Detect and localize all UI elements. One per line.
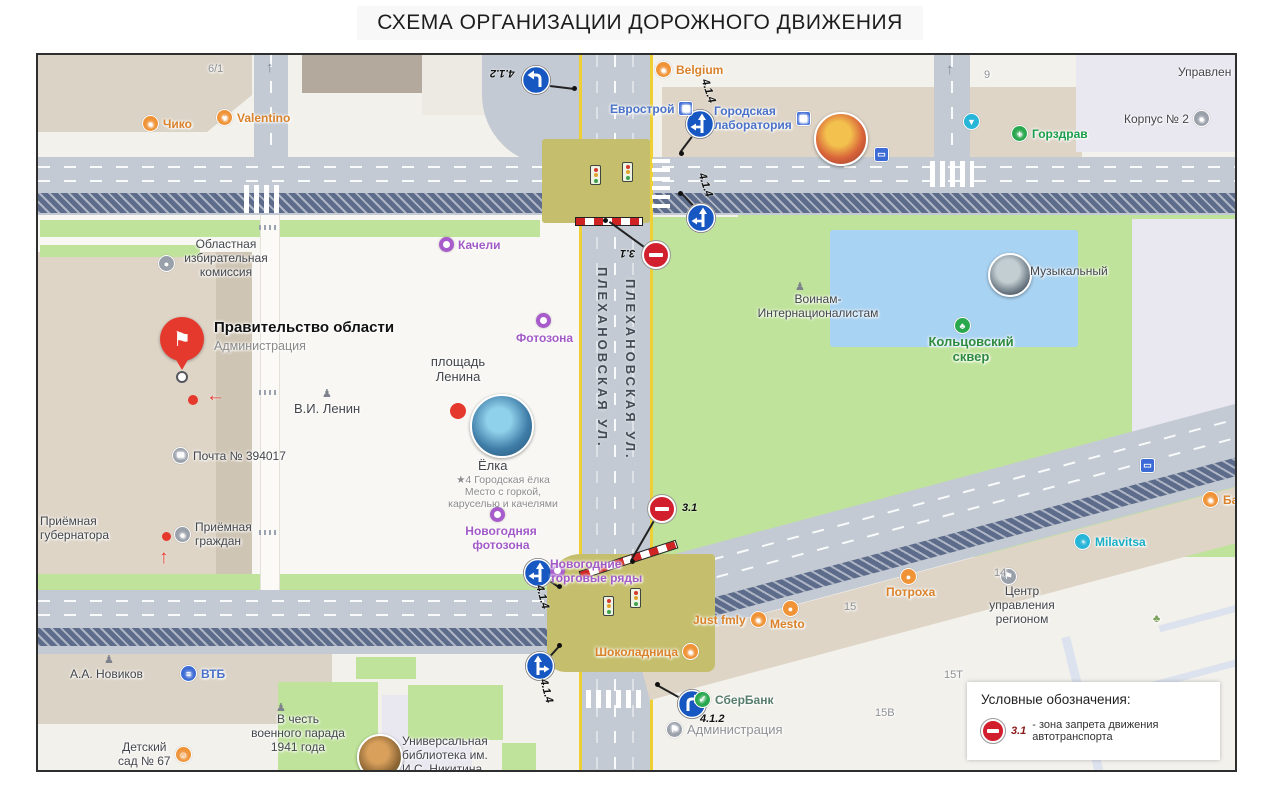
event-donut-icon [490,507,505,522]
pub-icon: ● [655,61,672,78]
poi-voinam[interactable]: Воинам- Интернационалистам [738,293,898,321]
poi-novog-torg[interactable]: Новогодние торговые ряды [550,558,642,586]
poi-label: Новогодние торговые ряды [550,558,642,586]
building-number: 15В [875,707,895,719]
pin-tail [175,358,189,370]
poi-just-fmly[interactable]: Just fmly● [693,611,767,628]
poi-lenin[interactable]: В.И. Ленин [294,401,360,416]
building-right-of-park [1132,217,1237,433]
poi-korpus2[interactable]: Корпус № 2● [1124,110,1210,127]
poi-label: Фотозона [516,331,573,345]
library-photo[interactable] [357,734,403,772]
poi-label: Valentino [237,111,290,125]
poi-belgium[interactable]: ●Belgium [655,61,723,78]
pin-anchor-ring [176,371,188,383]
plant-icon: ♣ [1153,613,1160,625]
monument-icon: ♟ [104,653,114,666]
poi-novikov[interactable]: А.А. Новиков [70,667,143,681]
poi-label: Потроха [886,585,935,599]
sign-4-1-4-straight-or-right [525,651,555,681]
leader-dot [572,86,577,91]
crosswalk-east-approach [652,159,670,211]
lab-icon: ▤ [796,111,811,126]
poi-valentino[interactable]: ♥Valentino [216,109,290,126]
leader-dot [678,191,683,196]
legend-sign-number: 3.1 [1011,725,1026,737]
poi-label: Музыкальный [1030,264,1108,278]
poi-label: Приёмная губернатора [40,515,109,543]
transit-stop-icon[interactable]: ▭ [874,147,889,162]
building-dark-roof [302,55,422,93]
poi-parad: В честь военного парада 1941 года [228,713,368,754]
legend-box: Условные обозначения: 3.1 - зона запрета… [967,682,1220,760]
poi-fotozona[interactable]: Фотозона [516,331,573,345]
sberbank-icon: ✓ [694,691,711,708]
lane-arrow-icon: ↑ [266,59,274,76]
poi-label: Ёлка [478,458,507,473]
no-entry-sign-icon [981,719,1005,743]
green-patch-3 [502,743,536,772]
route-dot [162,532,171,541]
elka-photo[interactable] [470,394,534,458]
cafe-icon: ● [682,643,699,660]
poi-label: Правительство области [214,319,394,336]
sign-4-1-2-turn-left [521,65,551,95]
traffic-light-icon [622,162,633,182]
traffic-light-icon [603,596,614,616]
elka-dot [450,403,466,419]
poi-milavitsa[interactable]: ◔Milavitsa [1074,533,1146,550]
building-number: 9 [984,69,990,81]
poi-label: А.А. Новиков [70,667,143,681]
monument-icon: ♟ [322,387,332,400]
street-label-plekhanovskaya-2: ПЛЕХАНОВСКАЯ УЛ. [623,279,638,461]
poi-chiko[interactable]: ●Чико [142,115,192,132]
event-donut-icon [439,237,454,252]
poi-label: Воинам- Интернационалистам [738,293,898,321]
page-title-text: СХЕМА ОРГАНИЗАЦИИ ДОРОЖНОГО ДВИЖЕНИЯ [357,6,923,40]
map-canvas[interactable]: ПЛЕХАНОВСКАЯ УЛ. ПЛЕХАНОВСКАЯ УЛ. ↑ ↑ [36,53,1237,772]
leader-dot [557,643,562,648]
poi-label: Детский сад № 67 [118,741,171,769]
poi-label: В честь военного парада 1941 года [228,713,368,754]
crosswalk-ticks-2 [259,390,279,395]
poi-admin2[interactable]: ⚑Администрация [666,721,783,738]
poi-label: Еврострой [610,102,674,116]
poi-label: Новогодняя фотозона [446,525,556,553]
poi-novog-fotozona[interactable]: Новогодняя фотозона [446,525,556,553]
poi-sublabel: Администрация [214,339,306,353]
poi-label: Belgium [676,63,723,77]
leader-dot [655,682,660,687]
poi-label: ВТБ [201,667,225,681]
pharmacy-cross-icon: + [1011,125,1028,142]
poi-label: Горздрав [1032,127,1088,141]
clothing-store-icon[interactable]: ▼ [963,113,980,130]
mail-icon: ✉ [172,447,189,464]
poi-label: Кольцовский сквер [906,335,1036,365]
poi-label: Шоколадница [595,645,678,659]
restaurant-icon: ● [900,568,917,585]
legend-item-text: - зона запрета движения автотранспорта [1032,719,1220,743]
poi-shokoladnitsa[interactable]: Шоколадница● [595,643,699,660]
poi-bara[interactable]: ●Бара [1202,491,1237,508]
poi-label: Областная избирательная комиссия [166,238,286,279]
poi-label: Чико [163,117,192,131]
poi-oblkom[interactable]: Областная избирательная комиссия [166,238,286,279]
building-government-wing [216,252,252,602]
building-number: 15Т [944,669,963,681]
sign-label: 4.1.4 [537,678,555,705]
smile-icon: ☺ [175,746,192,763]
poi-pl-lenina: площадь Ленина [413,355,503,385]
poi-detsad[interactable]: Детский сад № 67☺ [118,741,192,769]
poi-label: Качели [458,238,501,252]
poi-label: В.И. Ленин [294,401,360,416]
poi-label: Mesto [770,617,805,631]
flag-icon: ⚑ [173,327,191,352]
traffic-light-icon [630,588,641,608]
street-label-plekhanovskaya-1: ПЛЕХАНОВСКАЯ УЛ. [595,267,610,449]
legend-heading: Условные обозначения: [981,692,1220,707]
red-arrow-up-icon: ↑ [159,547,169,569]
cafe-icon: ● [142,115,159,132]
legend-item: 3.1 - зона запрета движения автотранспор… [981,719,1220,743]
event-donut-icon [536,313,551,328]
crosswalk-ticks-1 [259,225,279,230]
leader-dot [679,151,684,156]
building-icon: ● [1193,110,1210,127]
poi-muzykalny[interactable]: Музыкальный [1030,264,1108,278]
sign-4-1-4-straight-or-left [523,558,553,588]
poi-label: Milavitsa [1095,535,1146,549]
poi-sublabel: ★4 Городская ёлка Место с горкой, карусе… [428,474,578,510]
traffic-light-icon [590,165,601,185]
poi-label: Just fmly [693,613,746,627]
restaurant-icon: ♥ [216,109,233,126]
poi-vtb[interactable]: ≡ВТБ [180,665,225,682]
page-title: СХЕМА ОРГАНИЗАЦИИ ДОРОЖНОГО ДВИЖЕНИЯ [0,6,1280,40]
poi-label: Бара [1223,493,1237,507]
crosswalk-ticks-3 [259,530,279,535]
watch-icon: ◔ [1074,533,1091,550]
poi-label: Управлен [1178,65,1231,79]
poi-pochta[interactable]: ✉Почта № 394017 [172,447,286,464]
poi-label: Универсальная библиотека им. И.С. Никити… [402,735,488,772]
tram-photo[interactable] [814,112,868,166]
poi-biblioteka[interactable]: Универсальная библиотека им. И.С. Никити… [402,735,488,772]
government-pin[interactable]: ⚑ [160,317,204,361]
muzykalny-photo[interactable] [988,253,1032,297]
poi-label: Корпус № 2 [1124,112,1189,126]
poi-label: Приёмная граждан [195,521,252,549]
poi-label: Городская лаборатория [714,105,792,133]
org-icon: ● [174,526,191,543]
cafe-icon: ● [750,611,767,628]
lane-arrow-icon: ↑ [946,61,954,78]
poi-priem-gub[interactable]: Приёмная губернатора [40,515,109,543]
poi-evrostroy[interactable]: Еврострой▤ [610,101,693,116]
poi-mesto[interactable]: Mesto [770,617,805,631]
sign-label: 4.1.2 [490,67,514,79]
poi-label: площадь Ленина [413,355,503,385]
poi-tsentr[interactable]: Центр управления регионом [972,585,1072,626]
poi-government-sub: Администрация [214,339,306,353]
poi-gorzdrav[interactable]: +Горздрав [1011,125,1088,142]
poi-potroha[interactable]: Потроха [886,585,935,599]
poi-label: Администрация [687,722,783,737]
cafe-icon: ● [782,600,799,617]
poi-gorlab[interactable]: Городская лаборатория▤ [714,105,811,133]
green-verge-bottom-road [38,574,548,590]
poi-government-title[interactable]: Правительство области [214,319,394,336]
route-dot [188,395,198,405]
vtb-icon: ≡ [180,665,197,682]
building-number: 14 [994,567,1006,579]
poi-elka-sub: ★4 Городская ёлка Место с горкой, карусе… [428,474,578,510]
poi-priem-grazhdan[interactable]: ●Приёмная граждан [174,521,252,549]
poi-kacheli[interactable]: Качели [439,237,501,252]
green-strip-1 [40,220,540,237]
traffic-scheme-page: СХЕМА ОРГАНИЗАЦИИ ДОРОЖНОГО ДВИЖЕНИЯ [0,0,1280,803]
cafe-icon: ● [1202,491,1219,508]
poi-label: СберБанк [715,693,773,707]
sign-4-1-4-straight-or-left [686,203,716,233]
flag-icon: ⚑ [666,721,683,738]
green-patch-1 [356,657,416,679]
sign-3-1-no-entry [648,495,676,523]
poi-elka[interactable]: Ёлка [478,458,507,473]
poi-sberbank[interactable]: ✓СберБанк [694,691,773,708]
red-arrow-left-icon: ← [206,385,225,407]
building-number: 6/1 [208,63,223,75]
path-bottom-right-3 [1158,605,1237,633]
leader-dot [603,218,608,223]
poi-label: Центр управления регионом [972,585,1072,626]
green-patch-2 [408,685,503,740]
sign-label: 3.1 [620,247,635,259]
building-number: 15 [844,601,856,613]
park-tree-icon: ♣ [954,317,971,334]
poi-label: Почта № 394017 [193,449,286,463]
poi-upravlen[interactable]: Управлен [1178,65,1231,79]
store-icon: ▤ [678,101,693,116]
sign-label: 3.1 [682,502,697,514]
poi-koltsovsky[interactable]: Кольцовский сквер [906,335,1036,365]
transit-stop-icon[interactable]: ▭ [1140,458,1155,473]
sign-3-1-no-entry [642,241,670,269]
